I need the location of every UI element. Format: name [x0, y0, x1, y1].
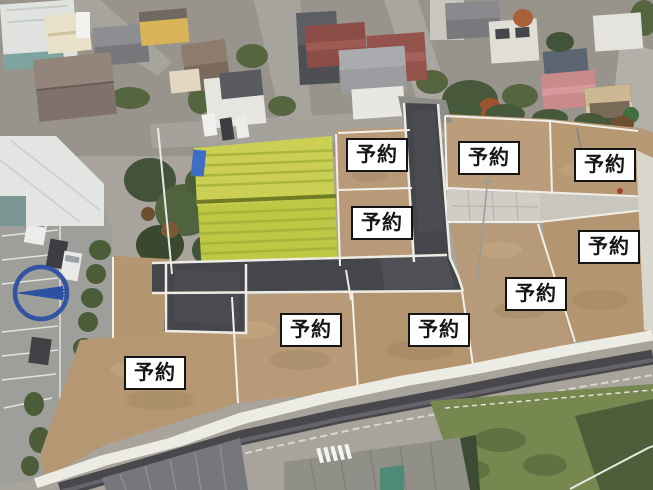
aerial-photo: N 予約 予約 予約 予約 予約 予約 予約 予約 予約 — [0, 0, 653, 490]
building-roof-bottom — [284, 435, 480, 490]
compass-north-letter: N — [57, 288, 72, 297]
aerial-scene: N — [0, 0, 653, 490]
reserved-lot-label-9: 予約 — [124, 356, 186, 390]
reserved-lot-label-8: 予約 — [408, 313, 470, 347]
reserved-lot-label-5: 予約 — [578, 230, 640, 264]
reserved-lot-label-1: 予約 — [346, 138, 408, 172]
reserved-lot-label-3: 予約 — [574, 148, 636, 182]
blue-tarp — [191, 149, 207, 176]
rice-paddy — [191, 136, 340, 272]
reserved-lot-label-4: 予約 — [351, 206, 413, 240]
reserved-lot-label-2: 予約 — [458, 141, 520, 175]
red-marker-post — [617, 188, 623, 194]
reserved-lot-label-7: 予約 — [280, 313, 342, 347]
reserved-lot-label-6: 予約 — [505, 277, 567, 311]
